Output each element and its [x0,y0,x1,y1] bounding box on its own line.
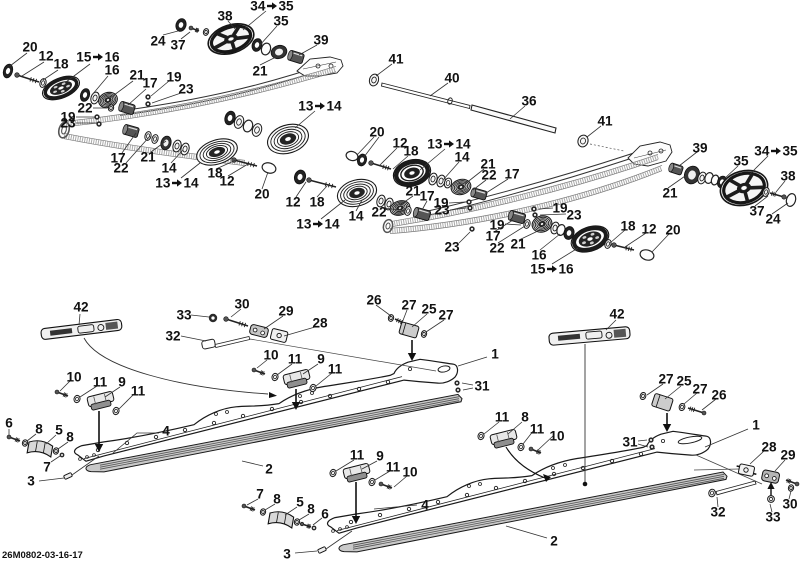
svg-text:5: 5 [296,495,304,510]
svg-text:13: 13 [296,217,312,232]
svg-text:37: 37 [170,38,185,53]
svg-text:28: 28 [761,440,777,455]
svg-text:18: 18 [309,195,325,210]
svg-text:35: 35 [279,0,295,14]
svg-text:12: 12 [285,195,301,210]
svg-text:24: 24 [765,212,781,227]
svg-text:11: 11 [530,422,545,437]
svg-text:6: 6 [5,416,13,431]
svg-text:33: 33 [176,308,192,323]
svg-text:11: 11 [288,352,303,367]
svg-text:4: 4 [421,498,429,513]
svg-text:16: 16 [104,63,120,78]
svg-text:26: 26 [366,293,382,308]
svg-text:25: 25 [421,302,437,317]
svg-text:13: 13 [298,99,314,114]
svg-text:10: 10 [402,465,417,480]
svg-text:22: 22 [371,205,387,220]
svg-text:37: 37 [749,204,764,219]
svg-text:33: 33 [765,510,781,525]
svg-text:13: 13 [427,137,443,152]
svg-text:23: 23 [566,208,582,223]
svg-text:36: 36 [521,94,537,109]
svg-text:42: 42 [609,307,625,322]
svg-text:12: 12 [38,49,54,64]
svg-text:1: 1 [752,418,760,433]
svg-text:25: 25 [676,374,692,389]
svg-text:8: 8 [521,410,529,425]
svg-text:21: 21 [510,237,526,252]
svg-text:27: 27 [401,298,416,313]
svg-text:32: 32 [710,505,726,520]
svg-text:12: 12 [219,174,235,189]
svg-text:9: 9 [317,352,325,367]
svg-text:2: 2 [550,534,558,549]
svg-text:42: 42 [73,300,89,315]
svg-text:7: 7 [43,460,51,475]
svg-text:14: 14 [184,176,200,191]
svg-text:32: 32 [165,329,181,344]
svg-text:21: 21 [252,64,268,79]
svg-text:41: 41 [597,114,613,129]
svg-text:9: 9 [376,449,384,464]
svg-text:11: 11 [93,375,108,390]
svg-text:17: 17 [419,189,434,204]
svg-text:39: 39 [692,141,708,156]
svg-text:35: 35 [733,154,749,169]
svg-text:15: 15 [530,262,546,277]
svg-text:30: 30 [782,497,797,512]
svg-text:11: 11 [131,384,146,399]
svg-text:10: 10 [549,429,564,444]
svg-text:14: 14 [325,217,341,232]
svg-text:41: 41 [388,52,404,67]
svg-text:3: 3 [27,474,35,489]
svg-text:7: 7 [256,487,264,502]
svg-text:27: 27 [692,382,707,397]
svg-text:11: 11 [495,410,510,425]
svg-text:6: 6 [321,507,329,522]
svg-text:20: 20 [22,40,37,55]
svg-text:27: 27 [438,308,453,323]
svg-text:34: 34 [754,144,770,159]
svg-text:18: 18 [403,144,419,159]
svg-text:23: 23 [444,240,460,255]
svg-text:13: 13 [155,176,171,191]
svg-text:22: 22 [481,168,497,183]
svg-text:24: 24 [150,34,166,49]
svg-text:4: 4 [162,424,170,439]
svg-text:22: 22 [489,241,505,256]
svg-text:30: 30 [234,297,249,312]
svg-text:34: 34 [250,0,266,14]
svg-text:40: 40 [444,71,459,86]
svg-text:16: 16 [531,248,547,263]
svg-text:14: 14 [327,99,343,114]
svg-text:11: 11 [350,448,365,463]
svg-text:35: 35 [783,144,799,159]
svg-text:8: 8 [35,422,43,437]
svg-text:18: 18 [53,57,69,72]
svg-text:31: 31 [622,435,638,450]
svg-text:29: 29 [278,304,294,319]
svg-text:17: 17 [142,76,157,91]
svg-text:23: 23 [434,203,450,218]
svg-text:26M0802-03-16-17: 26M0802-03-16-17 [2,550,83,561]
svg-text:22: 22 [113,161,129,176]
svg-text:26: 26 [711,388,727,403]
svg-text:8: 8 [273,492,281,507]
svg-text:20: 20 [665,223,680,238]
svg-text:21: 21 [140,150,156,165]
svg-text:21: 21 [662,186,678,201]
svg-text:5: 5 [55,423,63,438]
svg-text:20: 20 [254,187,269,202]
svg-text:17: 17 [504,167,519,182]
svg-text:38: 38 [217,9,233,24]
svg-text:10: 10 [66,370,81,385]
svg-text:12: 12 [641,222,657,237]
svg-text:35: 35 [273,14,289,29]
svg-text:3: 3 [283,547,291,562]
svg-text:14: 14 [348,209,364,224]
svg-text:15: 15 [76,50,92,65]
svg-text:22: 22 [77,101,93,116]
svg-text:38: 38 [780,169,796,184]
svg-text:1: 1 [491,347,499,362]
svg-text:20: 20 [369,125,384,140]
svg-text:11: 11 [328,362,343,377]
svg-text:31: 31 [474,379,490,394]
svg-text:29: 29 [780,448,796,463]
svg-text:39: 39 [313,33,329,48]
svg-text:10: 10 [263,348,278,363]
svg-text:8: 8 [307,502,315,517]
svg-text:27: 27 [658,372,673,387]
svg-text:14: 14 [454,150,470,165]
svg-text:11: 11 [386,460,401,475]
svg-text:28: 28 [312,316,328,331]
svg-text:16: 16 [559,262,575,277]
svg-text:8: 8 [66,430,74,445]
svg-text:23: 23 [178,82,194,97]
svg-text:23: 23 [60,116,76,131]
svg-text:2: 2 [265,462,273,477]
svg-text:18: 18 [620,219,636,234]
svg-text:14: 14 [161,161,177,176]
svg-text:9: 9 [118,375,126,390]
